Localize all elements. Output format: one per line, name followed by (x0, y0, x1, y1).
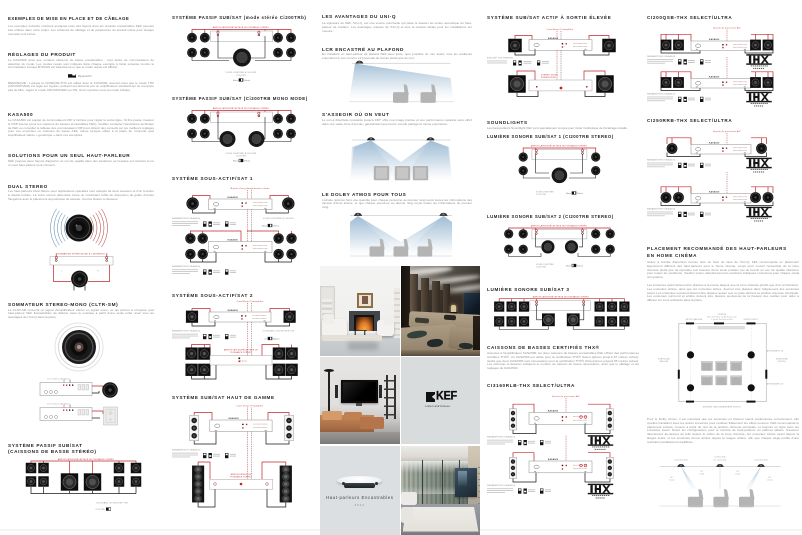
svg-text:FRONT GAUCHE: FRONT GAUCHE (686, 318, 703, 321)
svg-text:Crest Stereo Amplifier: Crest Stereo Amplifier (47, 403, 70, 406)
svg-text:CI-R-X/CI-R-A: CI-R-X/CI-R-A (754, 458, 768, 461)
svg-text:CI200TRB: CI200TRB (536, 194, 547, 196)
svg-text:KASA500: KASA500 (228, 196, 239, 199)
svg-text:ARRIÈRE GAUCHE/ARRIÈRE DROITE: ARRIÈRE GAUCHE/ARRIÈRE DROITE (703, 406, 741, 409)
svg-text:ATMOS/AURO 3D: ATMOS/AURO 3D (767, 382, 784, 385)
svg-text:Bypass/On: Bypass/On (78, 75, 92, 78)
svg-text:KASA500: KASA500 (548, 410, 559, 413)
svg-text:AMPLIFICATEUR/RÉCEPTEUR DE PUI: AMPLIFICATEUR/RÉCEPTEUR DE PUISSANCE STÉ… (213, 107, 270, 110)
svg-text:Crest Venue Preamplifier: Crest Venue Preamplifier (236, 405, 263, 408)
svg-text:PARAMÈTRES KASA500: PARAMÈTRES KASA500 (647, 207, 676, 210)
svg-text:(min): (min) (700, 473, 705, 475)
svg-text:PARAMÈTRES KASA500: PARAMÈTRES KASA500 (647, 158, 676, 161)
svg-text:Mono: Mono (566, 193, 572, 195)
svg-text:À partir du processeur A/V: À partir du processeur A/V (713, 130, 741, 133)
svg-text:KASA500: KASA500 (709, 191, 720, 194)
svg-text:AMPLIFICATEUR/RÉCEPTEUR DE PUI: AMPLIFICATEUR/RÉCEPTEUR DE PUISSANCE STÉ… (58, 458, 115, 461)
svg-text:SOMMATEUR STÉRÉO-MONO À L'INTÉ: SOMMATEUR STÉRÉO-MONO À L'INTÉRIEUR (57, 253, 105, 256)
svg-text:L'écran Perforé ou AT): L'écran Perforé ou AT) (711, 318, 732, 321)
svg-text:Stéréo: Stéréo (273, 224, 280, 227)
svg-text:KASA500: KASA500 (709, 76, 720, 79)
svg-text:On: On (264, 338, 267, 340)
svg-text:PARAMÈTRES KASA500: PARAMÈTRES KASA500 (487, 484, 516, 487)
svg-text:(max): (max) (767, 479, 772, 481)
svg-text:PARAMÈTRES KASA500: PARAMÈTRES KASA500 (172, 449, 201, 452)
svg-text:DROITE: DROITE (778, 361, 787, 363)
svg-text:Crest Stereo Amplifier: Crest Stereo Amplifier (47, 378, 70, 381)
svg-text:VOIES D'ENTRÉE À CHOISIR: VOIES D'ENTRÉE À CHOISIR (226, 152, 257, 155)
svg-text:VOIES D'ENTRÉE À CHOISIR: VOIES D'ENTRÉE À CHOISIR (226, 71, 257, 74)
svg-text:(4° (vertical)): (4° (vertical)) (714, 458, 727, 461)
svg-text:R: R (97, 271, 99, 273)
svg-text:À partir du processeur A/V: À partir du processeur A/V (552, 395, 580, 398)
svg-text:Stéréo: Stéréo (577, 264, 584, 267)
svg-text:SUBWOOFER: SUBWOOFER (541, 77, 556, 79)
svg-text:(Sur, Derrière ou Au-Dessus de: (Sur, Derrière ou Au-Dessus de (707, 316, 736, 319)
svg-text:À partir d'un préamplificateur: À partir d'un préamplificateur stéréo (230, 187, 270, 190)
svg-text:KASA500: KASA500 (228, 239, 239, 242)
svg-text:KASA500: KASA500 (228, 309, 239, 312)
svg-text:CI200TRB: CI200TRB (536, 266, 547, 268)
svg-text:VOIES D'ENTRÉE À CHOISIR: VOIES D'ENTRÉE À CHOISIR (263, 217, 294, 220)
svg-text:45°: 45° (670, 477, 673, 479)
svg-text:AMPLIFICATEUR/RÉCEPTEUR DE PUI: AMPLIFICATEUR/RÉCEPTEUR DE PUISSANCE STÉ… (533, 296, 590, 299)
svg-text:L: L (61, 271, 62, 273)
svg-text:AMPLIFICATEUR/RÉCEPTEUR DE PUI: AMPLIFICATEUR/RÉCEPTEUR DE PUISSANCE STÉ… (531, 145, 588, 148)
svg-text:PUISSANCE STÉRÉO: PUISSANCE STÉRÉO (230, 476, 252, 479)
svg-text:CI-R-X/CI-R-A: CI-R-X/CI-R-A (674, 458, 688, 461)
svg-text:Mono: Mono (566, 265, 572, 267)
svg-text:(min): (min) (736, 473, 741, 475)
svg-text:PARAMÈTRES KASA500: PARAMÈTRES KASA500 (647, 92, 676, 95)
svg-text:Crest/Venue Preamplifier: Crest/Venue Preamplifier (546, 28, 573, 31)
svg-text:Bypass: Bypass (273, 338, 280, 340)
svg-text:Crest/Venue Preamplifier: Crest/Venue Preamplifier (236, 300, 263, 303)
svg-text:CI200TRB: CI200TRB (236, 75, 246, 77)
svg-text:AMPLIFICATEUR/RÉCEPTEUR DE PUI: AMPLIFICATEUR/RÉCEPTEUR DE PUISSANCE STÉ… (531, 225, 588, 228)
svg-text:ATMOS/AURO 3D: ATMOS/AURO 3D (767, 350, 784, 353)
svg-text:FRONT DROIT: FRONT DROIT (744, 319, 759, 321)
svg-text:(max): (max) (669, 479, 674, 481)
svg-text:PARAMÈTRES KASA500: PARAMÈTRES KASA500 (172, 330, 201, 333)
svg-text:AMPLIFICATEUR/RÉCEPTEUR DE PUI: AMPLIFICATEUR/RÉCEPTEUR DE PUISSANCE STÉ… (213, 26, 270, 29)
svg-text:KASA500: KASA500 (548, 458, 559, 461)
svg-text:PUISSANCE STÉRÉO: PUISSANCE STÉRÉO (230, 351, 252, 354)
svg-text:Stéréo: Stéréo (244, 159, 251, 162)
svg-text:Mono: Mono (233, 80, 239, 82)
svg-text:EGALISÉ THX SHAPING: EGALISÉ THX SHAPING (487, 57, 514, 60)
svg-text:KASA500: KASA500 (228, 417, 239, 420)
svg-text:PARAMÈTRES KASA500: PARAMÈTRES KASA500 (487, 436, 516, 439)
svg-text:PARAMÈTRES KASA500: PARAMÈTRES KASA500 (172, 217, 201, 220)
svg-text:OUTBOARD CROSSOVER THX: OUTBOARD CROSSOVER THX (263, 330, 296, 333)
svg-text:Mono: Mono (233, 160, 239, 162)
svg-text:GAUCHE: GAUCHE (660, 360, 669, 363)
svg-text:KASA500: KASA500 (709, 142, 720, 145)
svg-text:KASA500: KASA500 (709, 38, 720, 41)
svg-text:PARAMÈTRES KASA500: PARAMÈTRES KASA500 (647, 55, 676, 58)
svg-text:20°: 20° (700, 471, 703, 473)
svg-text:Stéréo: Stéréo (244, 79, 251, 82)
svg-text:CI-R/CI-R-A: CI-R/CI-R-A (714, 456, 726, 459)
svg-text:Mono: Mono (262, 225, 268, 227)
svg-text:PARAMÈTRES KASA500: PARAMÈTRES KASA500 (172, 265, 201, 268)
svg-text:20°: 20° (736, 471, 739, 473)
svg-text:KASA500: KASA500 (548, 37, 559, 40)
svg-text:Stéréo: Stéréo (577, 192, 584, 195)
svg-text:À partir du processeur A/V: À partir du processeur A/V (713, 27, 741, 30)
svg-text:OUTBOARD CROSSOVER THX: OUTBOARD CROSSOVER THX (96, 502, 129, 505)
svg-text:45°: 45° (768, 477, 771, 479)
svg-text:CI200TRB: CI200TRB (236, 155, 246, 157)
svg-text:CI200TRB: CI200TRB (95, 509, 104, 511)
